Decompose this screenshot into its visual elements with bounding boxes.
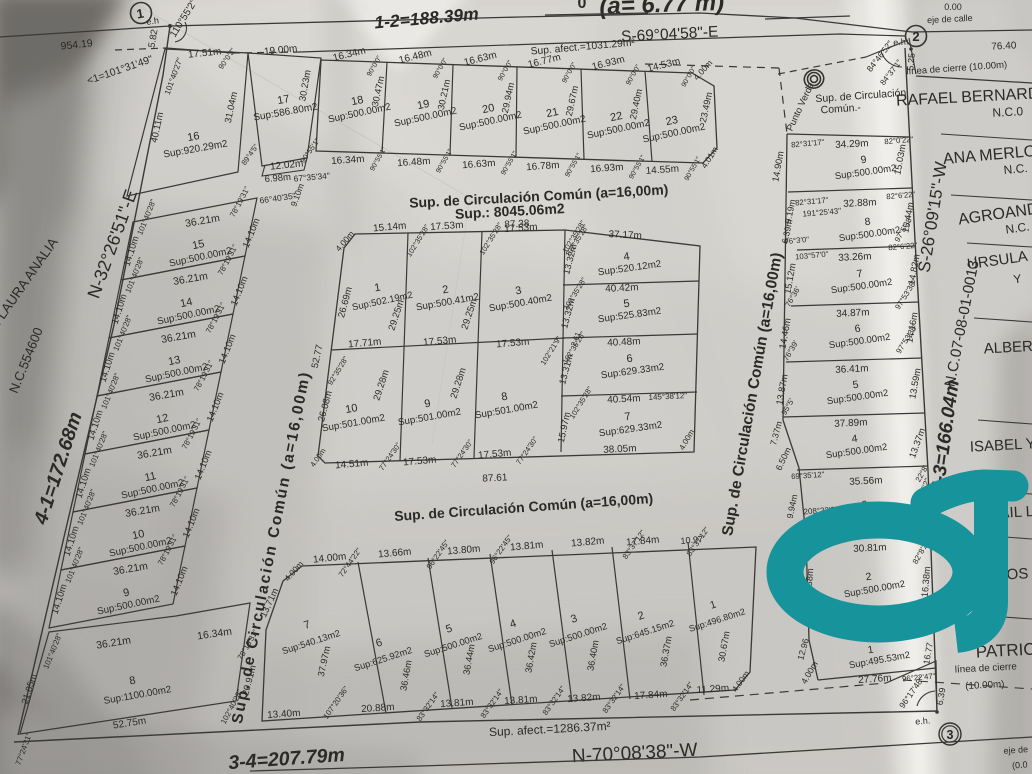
svg-text:36.41m: 36.41m — [835, 363, 869, 376]
svg-text:19: 19 — [416, 98, 430, 112]
svg-text:12: 12 — [155, 412, 169, 426]
svg-text:21: 21 — [545, 106, 559, 120]
svg-text:14: 14 — [179, 296, 193, 310]
svg-text:13: 13 — [167, 354, 181, 368]
svg-text:e.h: e.h — [146, 15, 160, 27]
svg-text:10.97: 10.97 — [680, 534, 703, 546]
svg-text:17.53m: 17.53m — [430, 220, 464, 233]
svg-text:18: 18 — [350, 94, 364, 108]
svg-text:16.48m: 16.48m — [397, 156, 431, 169]
svg-text:N.C.: N.C. — [1003, 161, 1028, 177]
svg-text:13.81m: 13.81m — [504, 694, 538, 707]
svg-text:17.84m: 17.84m — [634, 689, 668, 702]
svg-text:6.98m: 6.98m — [264, 172, 291, 185]
svg-text:ISABEL Y: ISABEL Y — [969, 435, 1032, 455]
svg-text:e.h.: e.h. — [893, 36, 909, 47]
svg-text:17.53m: 17.53m — [504, 222, 538, 235]
svg-text:14.55m: 14.55m — [645, 164, 679, 177]
svg-text:37.17m: 37.17m — [608, 229, 642, 242]
svg-text:37.89m: 37.89m — [834, 417, 868, 430]
svg-text:10: 10 — [344, 402, 358, 416]
svg-text:16.34m: 16.34m — [331, 154, 365, 167]
svg-text:e.h.: e.h. — [915, 715, 931, 726]
svg-text:40.54m: 40.54m — [607, 393, 641, 406]
svg-text:13.82m: 13.82m — [567, 692, 601, 705]
svg-text:11: 11 — [144, 470, 158, 484]
svg-text:27.76m: 27.76m — [858, 673, 892, 686]
svg-text:13.81m: 13.81m — [440, 697, 474, 710]
svg-text:22: 22 — [609, 110, 623, 124]
svg-text:16.93m: 16.93m — [590, 162, 624, 175]
svg-text:38.05m: 38.05m — [603, 443, 637, 456]
svg-text:23: 23 — [665, 114, 679, 128]
svg-text:10: 10 — [131, 528, 145, 542]
svg-text:(0.0: (0.0 — [1012, 759, 1028, 770]
svg-text:16.63m: 16.63m — [462, 158, 496, 171]
svg-text:13.40m: 13.40m — [267, 708, 301, 721]
svg-text:0: 0 — [578, 0, 587, 12]
svg-text:15: 15 — [191, 238, 205, 252]
svg-text:34.87m: 34.87m — [836, 307, 870, 320]
svg-text:ALBERT: ALBERT — [983, 337, 1032, 357]
svg-text:34.29m: 34.29m — [835, 138, 869, 151]
svg-text:30.81m: 30.81m — [853, 542, 887, 555]
svg-text:33.26m: 33.26m — [838, 251, 872, 264]
svg-text:40.42m: 40.42m — [605, 282, 639, 295]
svg-text:eje de: eje de — [1003, 744, 1028, 756]
svg-text:11.29m: 11.29m — [696, 683, 729, 696]
svg-text:16: 16 — [186, 130, 200, 144]
svg-text:17: 17 — [276, 93, 290, 107]
svg-text:20.88m: 20.88m — [361, 702, 395, 715]
svg-text:3: 3 — [947, 728, 954, 742]
svg-text:20: 20 — [481, 102, 495, 116]
svg-text:87.61: 87.61 — [482, 472, 508, 484]
svg-text:35.56m: 35.56m — [849, 475, 883, 488]
svg-text:0.00: 0.00 — [944, 2, 962, 12]
svg-text:16.78m: 16.78m — [526, 160, 560, 173]
svg-text:2: 2 — [912, 29, 919, 44]
svg-text:40.48m: 40.48m — [607, 336, 641, 349]
svg-text:76.40: 76.40 — [991, 40, 1017, 52]
svg-text:N.C.0: N.C.0 — [992, 104, 1024, 120]
svg-text:32.88m: 32.88m — [843, 197, 877, 210]
